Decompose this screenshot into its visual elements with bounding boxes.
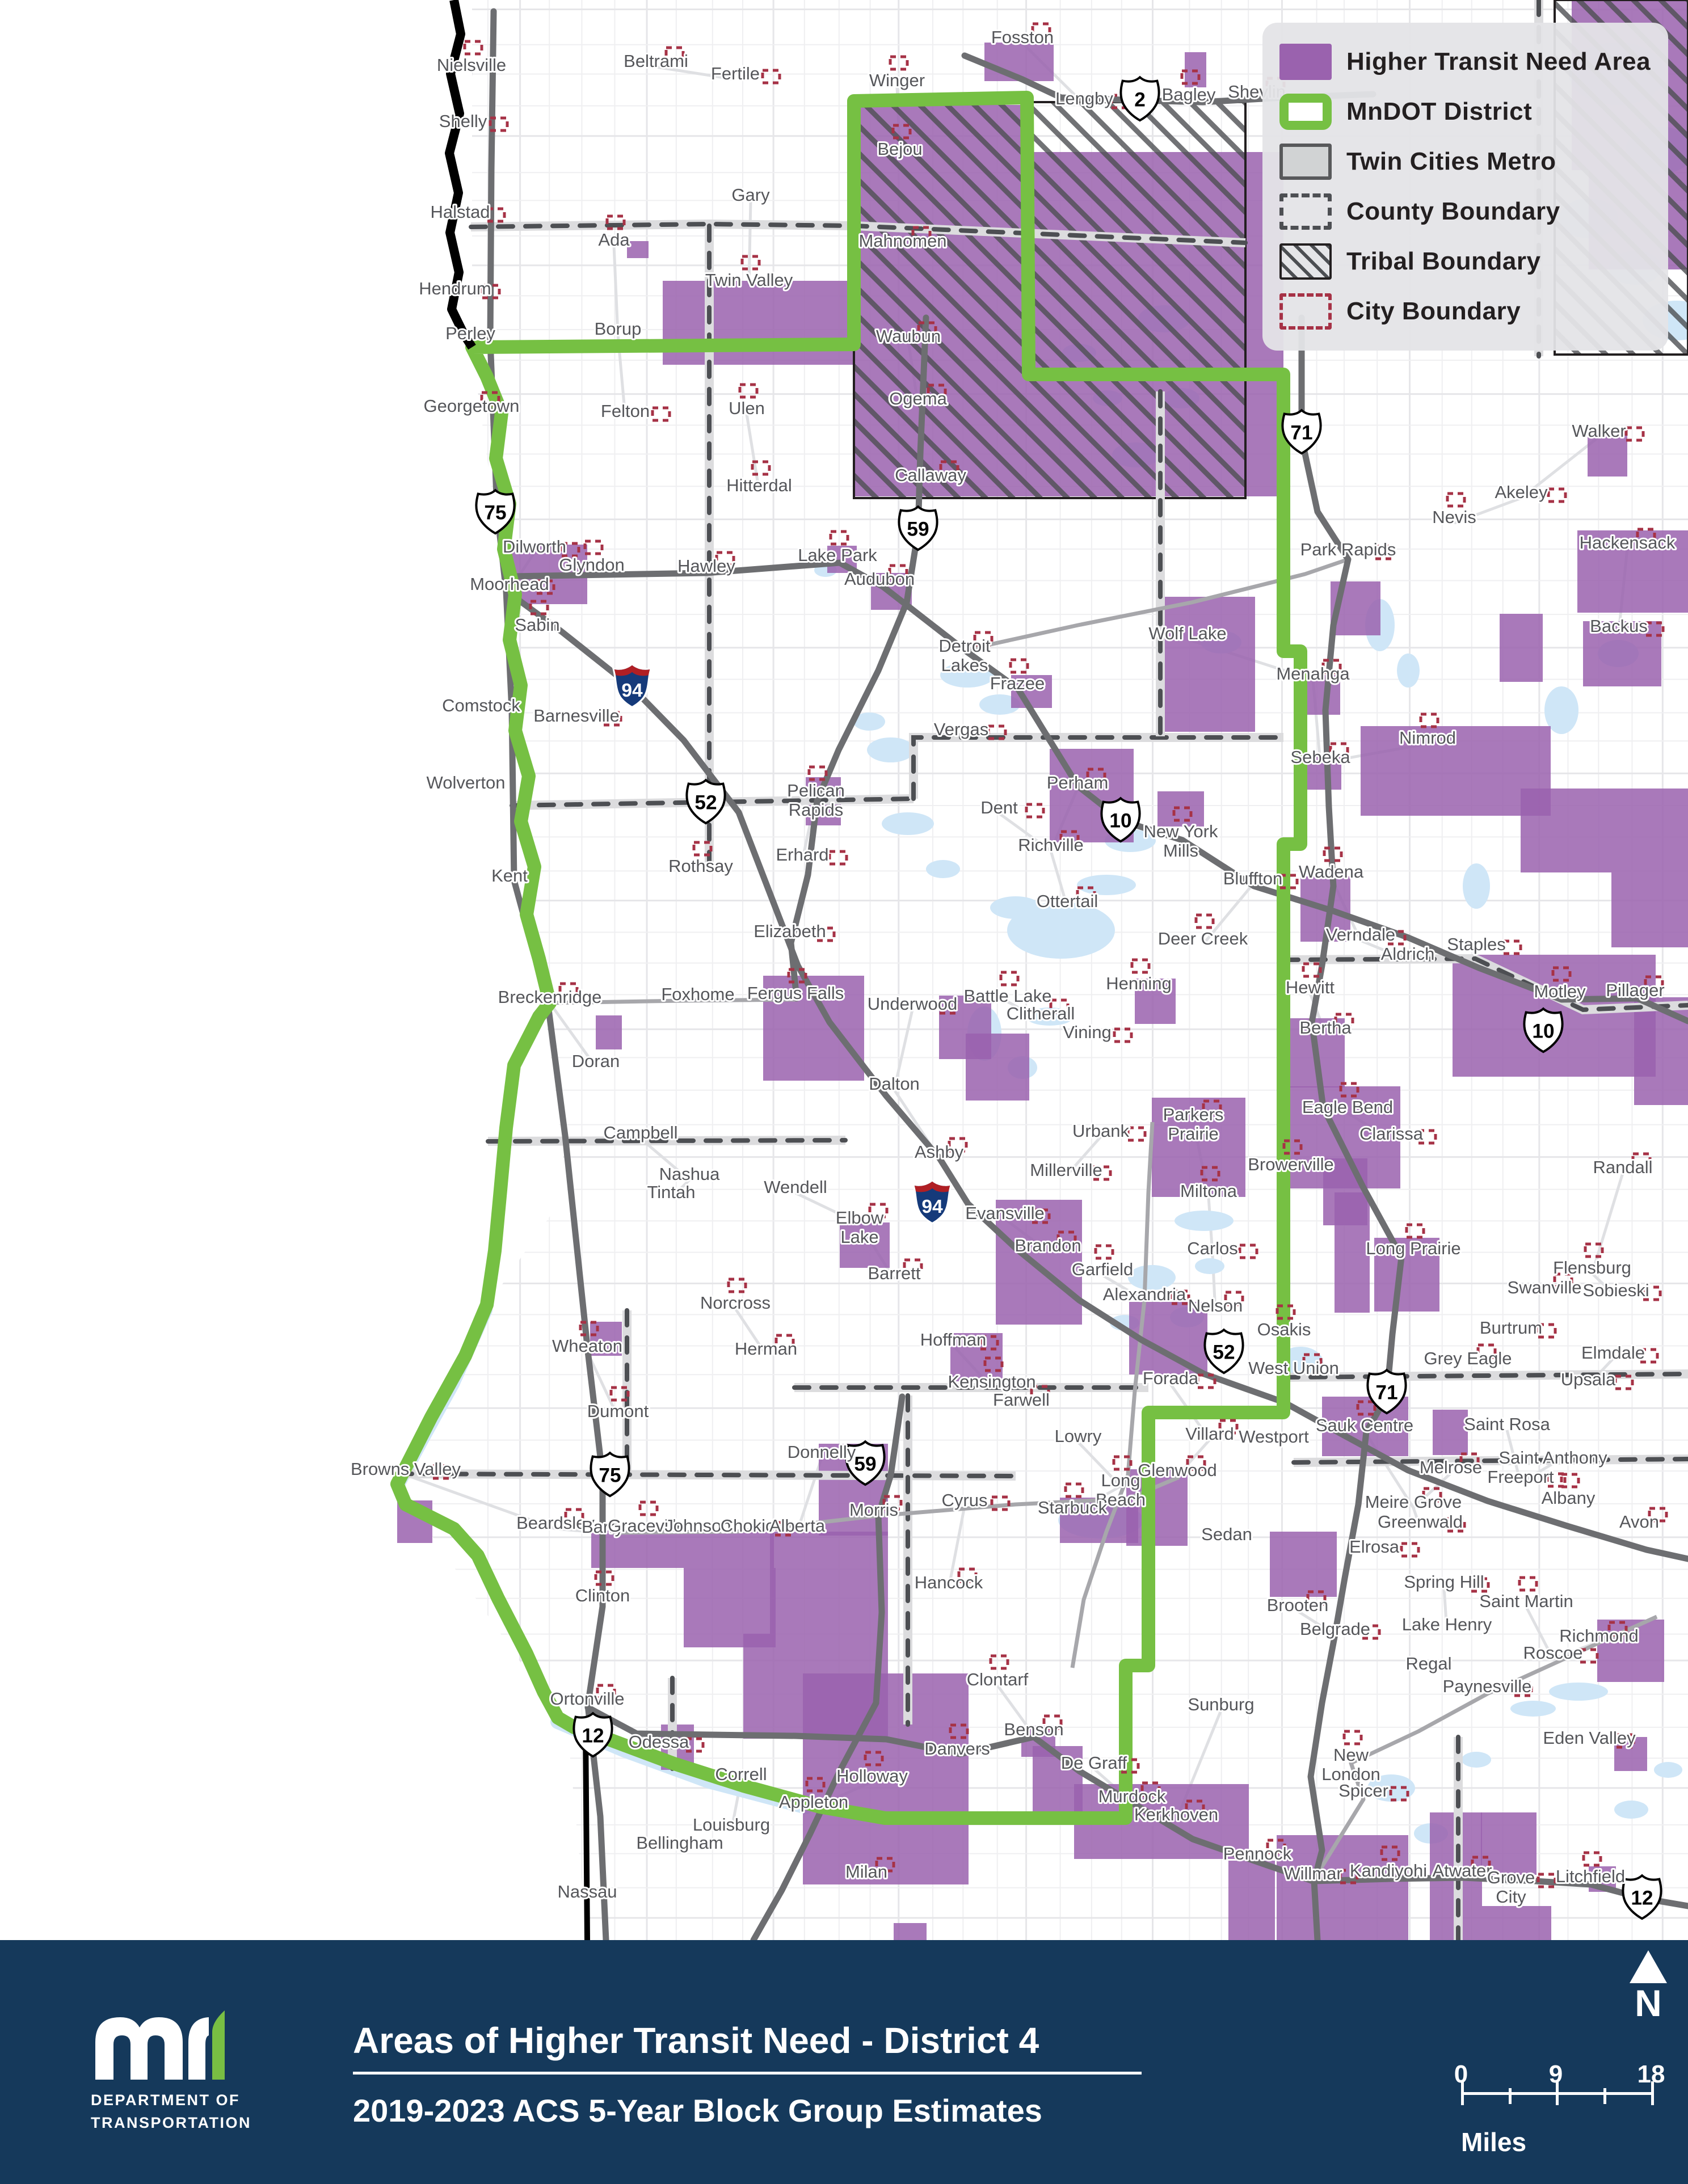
town-label: Brooten [1267,1595,1329,1615]
town-label: Browns Valley [351,1459,461,1479]
scale-tick [1603,2088,1606,2104]
town-label: Browerville [1248,1154,1334,1174]
scale-line [1461,2092,1654,2121]
town-label: Winger [869,70,925,90]
transit-need-area [1482,1906,1551,1940]
town-label: Urbank [1072,1121,1129,1141]
town-label: Sabin [515,615,559,635]
mndot-logo [91,2007,238,2081]
svg-text:2: 2 [1134,88,1146,111]
north-arrow: N [1614,1950,1682,2023]
town-label: Meire Grove [1365,1492,1462,1512]
town-label: Belgrade [1300,1619,1370,1639]
town-label: Correll [715,1764,767,1784]
town-label: Ada [598,230,630,250]
town-label: Miltona [1180,1181,1237,1201]
town-label: Benson [1004,1719,1063,1739]
town-label: Hackensack [1580,533,1676,553]
town-label: Sauk Centre [1316,1415,1413,1435]
town-label: Willmar [1283,1863,1342,1883]
town-label: Atwater [1432,1861,1492,1881]
town-label: Ottertail [1037,891,1098,911]
town-label: Carlos [1187,1238,1238,1258]
town-label: West Union [1248,1358,1339,1378]
town-label: Spicer [1338,1781,1388,1801]
town-label: Swanville [1508,1277,1582,1297]
transit-need-area [596,1015,622,1049]
town-label: Wolverton [427,773,506,792]
town-label: Eden Valley [1543,1728,1636,1748]
transit-need-area [627,241,649,258]
legend-swatch-red-icon [1279,293,1332,330]
town-label: Ortonville [550,1689,625,1709]
transit-need-area [1634,997,1688,1105]
town-label: Twin Valley [705,270,793,290]
legend-item-hatch: Tribal Boundary [1279,238,1651,285]
town-label: Ulen [729,398,765,418]
legend-swatch-purple-icon [1279,44,1332,80]
town-label: Farwell [993,1390,1050,1410]
town-label: Alexandria [1103,1284,1186,1304]
legend-label: County Boundary [1346,197,1560,226]
town-label: Bertha [1299,1018,1352,1038]
town-label: Lowry [1055,1426,1102,1446]
legend-swatch-gray-icon [1279,144,1332,180]
legend-item-green: MnDOT District [1279,88,1651,135]
svg-text:71: 71 [1375,1381,1397,1403]
town-label: Sebeka [1290,747,1350,767]
town-label: Hewitt [1286,977,1335,997]
town-label: Pillager [1606,980,1664,1000]
logo-n-white-shape [188,2017,209,2080]
town-label: Millerville [1030,1160,1102,1180]
town-label: Hitterdal [726,475,792,495]
town-label: Starbuck [1038,1498,1108,1517]
town-label: Ashby [915,1142,964,1162]
town-label: Nassau [557,1882,617,1901]
map-subtitle: 2019-2023 ACS 5-Year Block Group Estimat… [353,2092,1042,2129]
town-label: Evansville [965,1203,1045,1223]
town-label: Litchfield [1556,1866,1625,1886]
svg-text:12: 12 [582,1725,604,1747]
town-label: Rothsay [668,856,733,876]
town-label: Pennock [1223,1844,1292,1863]
town-label: Bluffton [1223,868,1283,888]
legend-swatch-dash-icon [1279,193,1332,230]
state-border-south [586,1729,587,1940]
legend-label: MnDOT District [1346,98,1532,126]
town-label: PelicanRapids [787,781,845,820]
town-label: Staples [1447,934,1505,954]
town-label: Beltrami [624,51,688,71]
town-label: Nimrod [1399,728,1456,748]
town-label: Breckenridge [498,987,602,1007]
town-label: Georgetown [424,396,520,416]
town-label: Walker [1572,421,1626,441]
town-label: Richville [1018,835,1083,855]
transit-need-area [770,1532,888,1634]
scale-unit: Miles [1461,2127,1654,2157]
town-label: Upsala [1561,1369,1616,1389]
scale-tick [1556,2081,1559,2105]
town-label: Holloway [836,1766,908,1786]
transit-need-area [966,1034,1029,1101]
town-label: Perley [445,323,495,343]
town-label: Sobieski [1582,1280,1649,1300]
town-label: Hawley [677,556,735,576]
town-label: Bagley [1162,85,1216,104]
svg-text:52: 52 [1213,1341,1235,1363]
town-label: Appleton [779,1792,848,1812]
town-label: Villard [1185,1424,1234,1444]
town-label: Gary [731,185,770,205]
town-label: Elizabeth [754,921,826,941]
legend-item-gray: Twin Cities Metro [1279,138,1651,185]
town-label: Danvers [924,1739,990,1759]
town-label: Nashua [659,1164,721,1184]
town-label: Borup [595,319,642,339]
town-label: Murdock [1098,1786,1166,1806]
town-label: Saint Anthony [1498,1448,1607,1468]
transit-need-area [1277,1835,1408,1940]
town-label: Lake Park [798,545,877,565]
town-label: DetroitLakes [938,636,991,675]
town-label: Sedan [1201,1524,1252,1544]
north-arrow-icon [1630,1950,1667,1983]
town-label: Audubon [844,569,915,589]
transit-need-area [894,1923,927,1940]
town-label: Regal [1406,1654,1452,1673]
legend-item-red: City Boundary [1279,288,1651,335]
town-label: Tintah [647,1182,695,1202]
svg-text:94: 94 [921,1196,943,1217]
town-label: Burtrum [1480,1318,1542,1338]
town-label: Herman [735,1339,797,1359]
town-label: Albany [1542,1488,1596,1508]
town-label: Hancock [915,1572,983,1592]
legend-item-dash: County Boundary [1279,188,1651,235]
town-label: Felton [601,401,650,421]
town-label: Backus [1590,616,1648,636]
town-label: Avon [1619,1512,1659,1532]
town-label: Elrosa [1349,1537,1400,1557]
svg-text:10: 10 [1109,809,1131,832]
town-label: Hendrum [419,279,491,298]
transit-need-area [1335,1192,1370,1313]
map-title: Areas of Higher Transit Need - District … [353,2019,1039,2061]
town-label: Wendell [764,1177,827,1197]
transit-need-area [1159,597,1255,732]
town-label: Kerkhoven [1134,1804,1218,1824]
town-label: Eagle Bend [1302,1097,1393,1117]
svg-text:75: 75 [484,501,506,524]
town-label: Bejou [877,139,922,159]
svg-text:12: 12 [1631,1887,1653,1909]
north-label: N [1614,1983,1682,2023]
town-label: Barnesville [533,706,620,726]
town-label: Moorhead [470,574,549,594]
town-label: Battle Lake [963,986,1051,1006]
town-label: Long Prairie [1366,1238,1460,1258]
town-label: Morris [849,1500,898,1520]
town-label: Louisburg [693,1815,770,1835]
town-label: Frazee [990,673,1045,693]
town-label: Clinton [575,1586,630,1605]
town-label: Fosston [991,27,1054,47]
town-label: Clontarf [967,1669,1029,1689]
town-label: Flensburg [1553,1258,1631,1277]
town-label: Shelly [439,111,487,131]
svg-text:52: 52 [694,791,717,813]
town-label: Wadena [1299,862,1364,882]
town-label: Waubun [876,326,941,346]
town-label: Donnelly [788,1442,856,1462]
town-label: Spring Hill [1404,1572,1484,1592]
town-label: Norcross [700,1293,771,1313]
town-label: Aldrich [1381,944,1435,964]
svg-text:59: 59 [854,1453,876,1475]
town-label: Barrett [868,1263,920,1283]
town-label: Clitherall [1007,1004,1075,1023]
town-label: Deer Creek [1158,929,1248,948]
town-label: Fergus Falls [747,983,844,1003]
town-label: Greenwald [1378,1512,1463,1532]
town-label: Menahga [1276,664,1350,684]
town-label: Nelson [1188,1296,1243,1316]
svg-text:10: 10 [1532,1020,1554,1042]
town-label: Alberta [769,1516,826,1536]
town-label: Cyrus [942,1490,988,1510]
town-label: Nielsville [437,55,506,75]
legend-label: Higher Transit Need Area [1346,48,1651,76]
transit-need-area [1228,1861,1275,1940]
town-label: Bellingham [636,1833,723,1853]
scale-tick [1461,2081,1464,2105]
town-label: Perham [1047,773,1109,792]
town-label: Osakis [1257,1319,1311,1339]
town-label: ParkersPrairie [1163,1104,1224,1144]
transit-need-area [1270,1532,1337,1597]
scale-bar: 0918 Miles [1461,2060,1654,2157]
logo-n-green-shape [212,2010,225,2080]
scale-tick [1509,2088,1512,2104]
town-label: Saint Rosa [1464,1414,1550,1434]
svg-text:94: 94 [621,680,643,701]
town-label: Dumont [587,1401,649,1421]
town-label: Saint Martin [1479,1591,1573,1611]
town-label: Callaway [895,465,966,485]
town-label: Dent [980,798,1018,817]
transit-need-area [1521,789,1688,872]
town-label: Odessa [629,1732,690,1752]
town-label: Elmdale [1581,1343,1645,1363]
town-label: Freeport [1487,1467,1554,1487]
town-label: Akeley [1495,482,1548,502]
town-label: Paynesville [1443,1676,1532,1696]
town-label: Forada [1143,1368,1199,1388]
map-page: 27575595952521010717112129494NielsvilleB… [0,0,1688,2184]
town-label: Campbell [604,1123,678,1142]
town-label: Vergas [934,719,989,739]
legend-item-purple: Higher Transit Need Area [1279,39,1651,85]
transit-need-area [1500,614,1543,682]
town-label: Roscoe [1523,1643,1582,1663]
town-label: Erhard [776,845,828,865]
town-label: De Graff [1061,1753,1127,1773]
svg-text:75: 75 [599,1464,621,1486]
transit-need-area [1433,1410,1468,1455]
map-legend: Higher Transit Need AreaMnDOT DistrictTw… [1262,23,1668,351]
legend-label: Twin Cities Metro [1346,147,1556,176]
town-label: Henning [1106,973,1171,993]
town-label: Hoffman [920,1330,987,1350]
town-label: Nevis [1432,507,1476,527]
town-label: Lake Henry [1402,1614,1492,1634]
town-label: Mahnomen [858,231,946,251]
town-label: Doran [572,1051,620,1071]
town-label: Halstad [430,202,490,222]
transit-need-area [1611,872,1688,947]
logo-dept-line2: TRANSPORTATION [91,2111,261,2134]
town-label: Milan [845,1862,887,1882]
town-label: Kandiyohi [1350,1861,1427,1881]
town-label: Park Rapids [1300,539,1396,559]
town-label: Vining [1063,1022,1112,1042]
town-label: Chokio [721,1516,776,1536]
town-label: Brandon [1015,1236,1081,1255]
town-label: Comstock [442,695,520,715]
scale-tick [1651,2081,1654,2105]
legend-swatch-hatch-icon [1279,243,1332,280]
legend-label: Tribal Boundary [1346,247,1540,276]
town-label: Underwood [868,994,958,1014]
logo-m-shape [95,2017,183,2080]
town-label: Motley [1534,981,1586,1001]
logo-dept-line1: DEPARTMENT OF [91,2089,261,2111]
town-label: Dilworth [503,537,566,556]
town-label: Sunburg [1188,1694,1254,1714]
title-divider [353,2072,1142,2075]
legend-swatch-green-icon [1279,94,1332,130]
town-label: Dalton [869,1074,920,1094]
town-label: Ogema [889,389,947,408]
town-label: Westport [1239,1427,1309,1447]
town-label: Wheaton [552,1336,622,1356]
town-label: Wolf Lake [1148,623,1226,643]
town-label: Verndale [1326,925,1395,945]
svg-text:59: 59 [907,518,929,540]
footer-bar: DEPARTMENT OF TRANSPORTATION Areas of Hi… [0,1940,1688,2184]
town-label: Foxhome [661,984,734,1004]
town-label: Glenwood [1138,1460,1217,1480]
town-label: Randall [1593,1157,1652,1177]
town-label: Melrose [1420,1457,1482,1477]
town-label: ElbowLake [836,1208,884,1247]
town-label: Garfield [1072,1259,1134,1279]
town-label: Kent [491,866,528,886]
town-label: Fertile [711,64,760,83]
town-label: Glyndon [559,555,624,575]
legend-label: City Boundary [1346,297,1521,326]
town-label: Kensington [948,1372,1035,1392]
town-label: Grey Eagle [1424,1348,1512,1368]
svg-text:71: 71 [1290,421,1312,444]
town-label: Clarissa [1359,1124,1424,1144]
town-label: Lengby [1055,88,1113,108]
